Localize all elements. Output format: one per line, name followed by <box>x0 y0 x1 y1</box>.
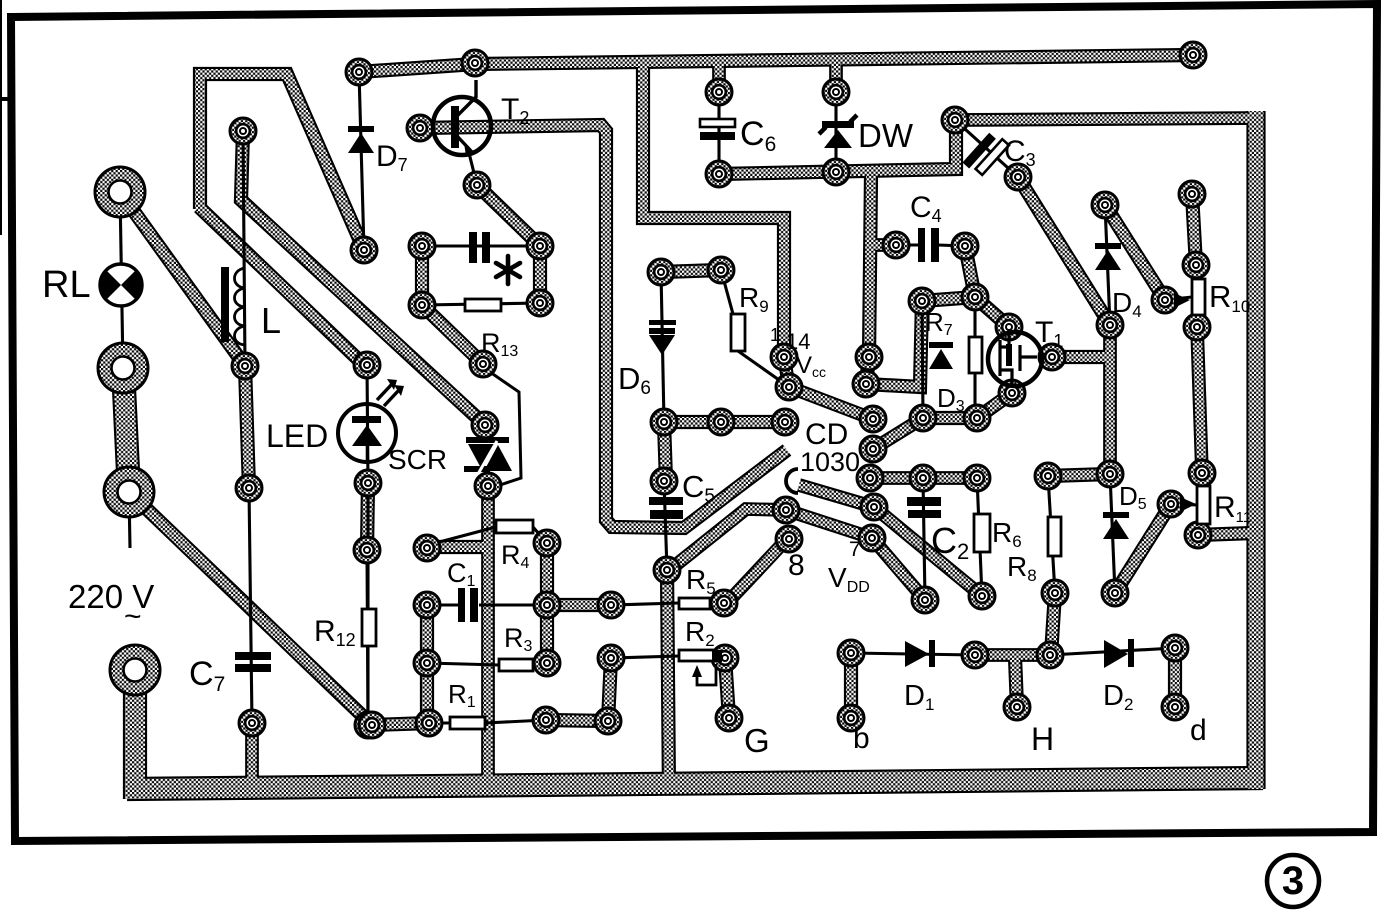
svg-text:~: ~ <box>124 600 142 633</box>
svg-text:8: 8 <box>788 549 805 582</box>
svg-text:1: 1 <box>770 325 780 345</box>
svg-text:SCR: SCR <box>388 444 447 475</box>
svg-text:H: H <box>1031 721 1054 757</box>
svg-text:LED: LED <box>266 418 328 454</box>
svg-text:d: d <box>1190 714 1207 747</box>
svg-text:L: L <box>261 300 281 341</box>
svg-text:b: b <box>853 722 870 755</box>
svg-text:G: G <box>744 722 770 759</box>
svg-text:14: 14 <box>786 329 810 354</box>
svg-text:3: 3 <box>1282 859 1304 903</box>
svg-text:RL: RL <box>42 264 91 306</box>
svg-text:7: 7 <box>849 538 861 561</box>
svg-text:1030: 1030 <box>800 447 860 477</box>
svg-text:DW: DW <box>858 117 914 154</box>
